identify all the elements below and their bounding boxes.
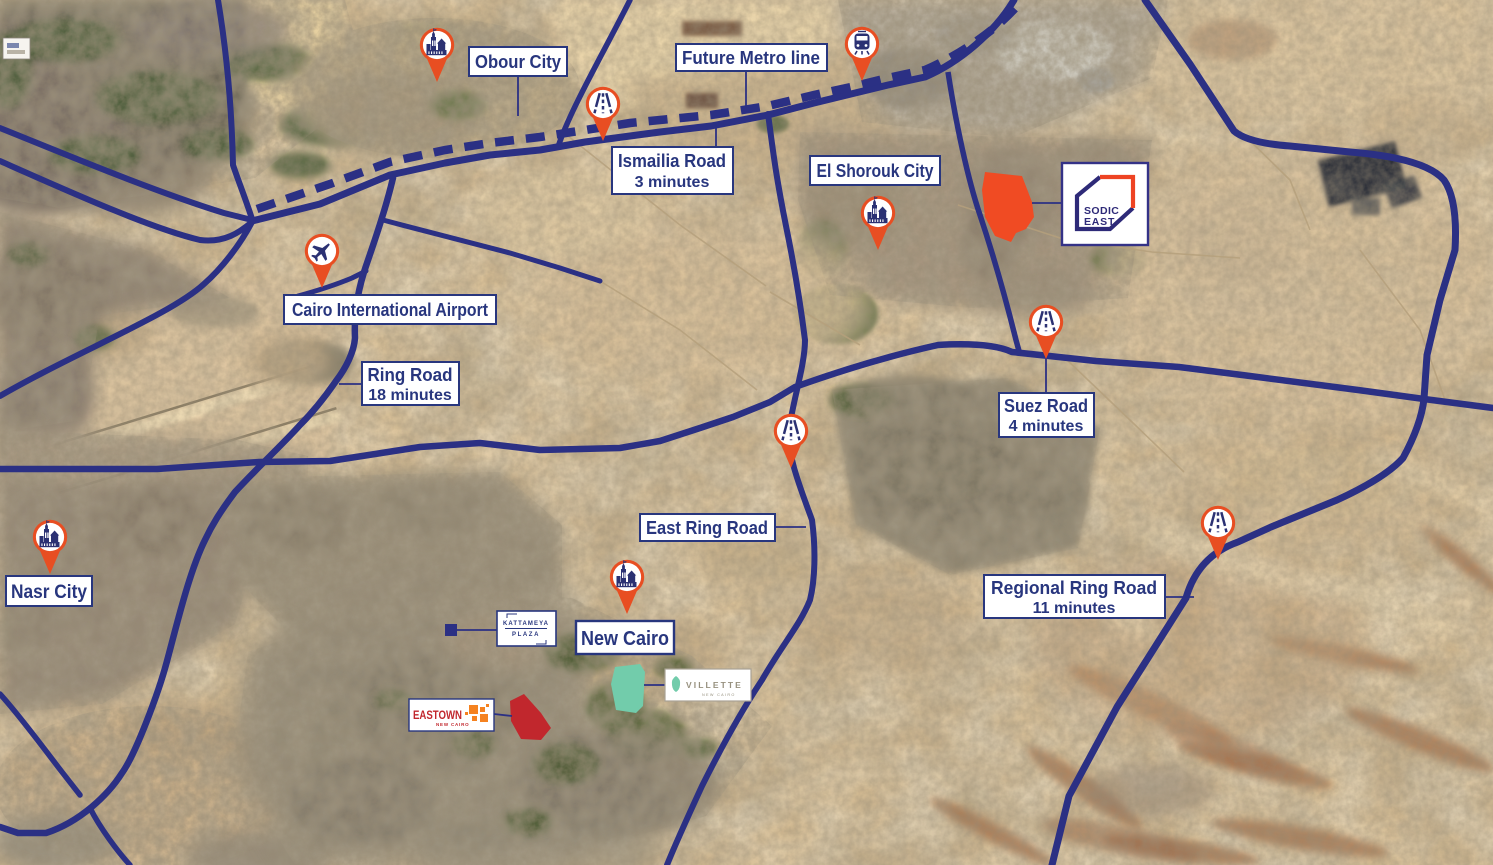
svg-text:East Ring Road: East Ring Road (646, 517, 768, 538)
svg-text:Regional Ring Road: Regional Ring Road (991, 577, 1157, 598)
svg-text:Nasr City: Nasr City (11, 582, 87, 603)
svg-text:4 minutes: 4 minutes (1009, 418, 1084, 435)
svg-text:Ismailia Road: Ismailia Road (618, 150, 726, 171)
svg-text:PLAZA: PLAZA (512, 632, 540, 638)
svg-text:Suez Road: Suez Road (1004, 395, 1088, 416)
svg-text:KATTAMEYA: KATTAMEYA (503, 621, 549, 627)
svg-text:El Shorouk City: El Shorouk City (817, 160, 935, 181)
svg-text:EAST: EAST (1084, 216, 1115, 228)
svg-text:Cairo International Airport: Cairo International Airport (292, 299, 488, 320)
svg-text:18 minutes: 18 minutes (368, 387, 452, 404)
svg-text:VILLETTE: VILLETTE (686, 680, 743, 690)
svg-text:EASTOWN: EASTOWN (413, 708, 462, 722)
svg-text:3 minutes: 3 minutes (635, 174, 710, 191)
svg-text:NEW CAIRO: NEW CAIRO (702, 693, 736, 697)
svg-text:Obour City: Obour City (475, 51, 562, 72)
svg-text:New Cairo: New Cairo (581, 628, 669, 650)
svg-text:Future Metro line: Future Metro line (682, 47, 820, 68)
svg-text:NEW CAIRO: NEW CAIRO (436, 722, 469, 727)
svg-text:Ring Road: Ring Road (368, 364, 453, 385)
svg-text:11 minutes: 11 minutes (1033, 600, 1116, 617)
